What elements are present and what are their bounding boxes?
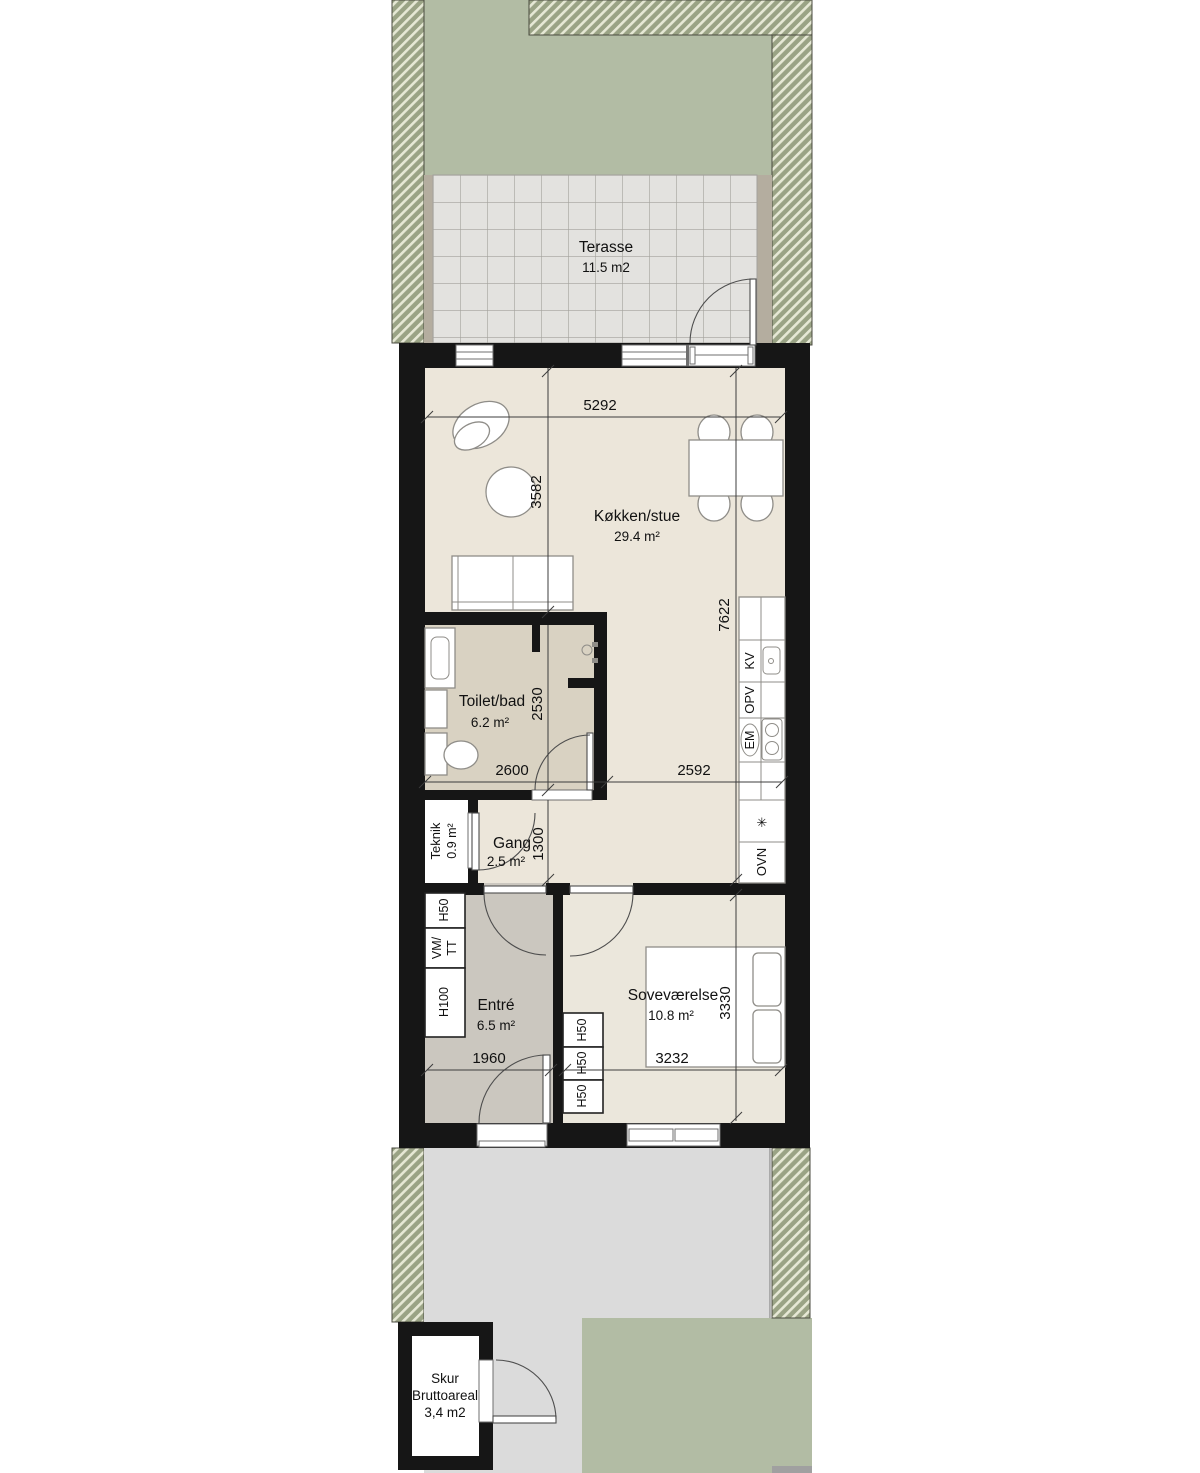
floorplan-drawing: Terasse 11.5 m2 Køkken/stue 29.4 m² Toil… — [0, 0, 1200, 1473]
hatch-strip-right-top — [772, 35, 812, 345]
dim-3330: 3330 — [717, 986, 734, 1019]
hatch-strip-left-top — [392, 0, 424, 343]
room-label-kitchen: Køkken/stue — [594, 508, 680, 525]
unit-label-freezer: ✳ — [757, 815, 768, 830]
cabinet-label-h50-bed-3: H50 — [575, 1084, 589, 1107]
terrace-tiles — [433, 175, 757, 343]
dim-2530: 2530 — [529, 687, 546, 720]
cabinet-label-h50-bed-1: H50 — [575, 1018, 589, 1041]
wall-hall-mid — [546, 883, 570, 895]
cabinet-label-h50-entre: H50 — [437, 898, 451, 921]
room-area-entre: 6.5 m² — [477, 1018, 516, 1033]
dim-2600: 2600 — [495, 762, 528, 779]
terrace-edge-right — [757, 175, 772, 343]
window-bedroom — [627, 1124, 720, 1146]
terrace-name: Terasse — [579, 239, 633, 256]
wall-toilet-bottom-right — [592, 790, 607, 800]
room-label-entre: Entré — [477, 997, 514, 1014]
room-area-gang: 2.5 m² — [487, 854, 526, 869]
pillow — [753, 1010, 781, 1063]
room-label-toilet: Toilet/bad — [459, 693, 525, 710]
path-corner-piece — [772, 1466, 812, 1473]
cabinet-label-tt: TT — [445, 940, 459, 956]
unit-label-opv: OPV — [742, 686, 757, 714]
hatch-strip-right-bottom — [772, 1148, 810, 1318]
room-label-teknik: Teknik — [428, 822, 443, 859]
terrace-area: 11.5 m2 — [582, 260, 630, 275]
wall-teknik-right-top — [468, 800, 478, 813]
room-label-gang: Gang — [493, 835, 531, 852]
room-area-bedroom: 10.8 m² — [648, 1008, 694, 1023]
terrace-area — [424, 175, 772, 343]
pillow — [753, 953, 781, 1006]
terrace-door-window — [622, 345, 755, 366]
unit-label-kv: KV — [742, 652, 757, 670]
wall-shower-stub-vertical — [532, 625, 540, 652]
room-area-teknik: 0.9 m² — [445, 823, 459, 858]
front-door-opening — [477, 1124, 547, 1147]
unit-label-em: EM — [743, 731, 757, 750]
dim-1960: 1960 — [472, 1050, 505, 1067]
shed-door-opening — [479, 1360, 493, 1422]
room-area-toilet: 6.2 m² — [471, 715, 510, 730]
bed — [646, 947, 785, 1067]
shed-name: Skur — [431, 1371, 459, 1386]
dim-2592: 2592 — [677, 762, 710, 779]
shed-label: Bruttoareal — [412, 1388, 478, 1403]
wall-toilet-top — [425, 612, 607, 625]
cabinet-label-h100: H100 — [437, 987, 451, 1017]
sofa — [452, 556, 573, 610]
window-living-left — [456, 345, 493, 366]
room-label-bedroom: Soveværelse — [628, 987, 718, 1004]
hatch-strip-left-bottom — [392, 1148, 424, 1322]
lawn-bottom — [582, 1318, 812, 1473]
dim-3582: 3582 — [528, 475, 545, 508]
toilet-door-opening — [532, 790, 592, 800]
wall-toilet-bottom-left — [425, 790, 532, 800]
hatch-block-top-right — [529, 0, 812, 35]
dim-7622: 7622 — [716, 598, 733, 631]
dim-1300: 1300 — [530, 827, 547, 860]
wall-shower-stub-horizontal — [568, 678, 607, 688]
shed-area: 3,4 m2 — [424, 1405, 465, 1420]
floorplan-page: Terasse 11.5 m2 Køkken/stue 29.4 m² Toil… — [0, 0, 1200, 1473]
wall-hall-right — [633, 883, 785, 895]
wall-toilet-right — [594, 612, 607, 800]
room-area-kitchen: 29.4 m² — [614, 529, 660, 544]
cabinet-label-vm: VM/ — [430, 936, 444, 959]
bathroom-cabinet — [425, 690, 447, 728]
terrace-edge-left — [424, 175, 433, 343]
dim-3232: 3232 — [655, 1050, 688, 1067]
cabinet-label-h50-bed-2: H50 — [575, 1051, 589, 1074]
dim-5292: 5292 — [583, 397, 616, 414]
wall-entre-right — [553, 895, 563, 1123]
wc-bowl — [444, 741, 478, 769]
unit-label-ovn: OVN — [754, 848, 769, 876]
